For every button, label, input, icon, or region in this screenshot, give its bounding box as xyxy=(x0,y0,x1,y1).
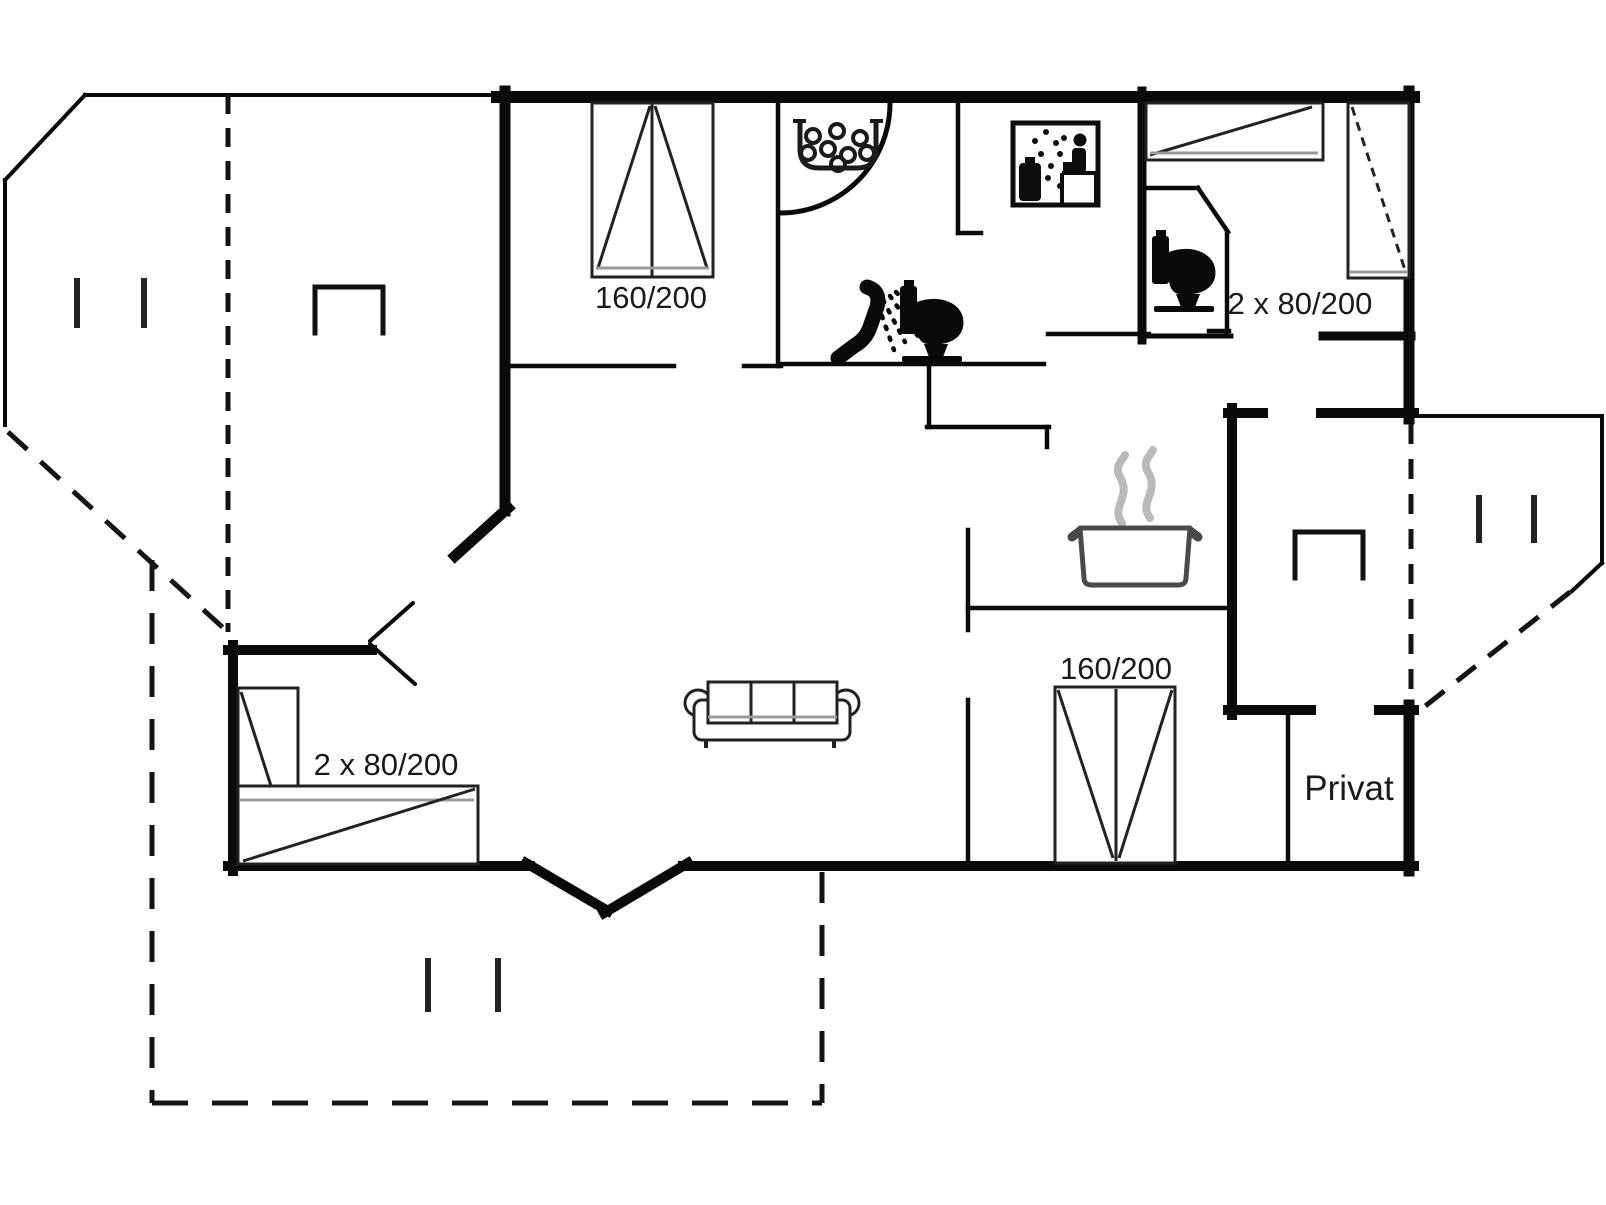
bed-size-label-bottom-left: 2 x 80/200 xyxy=(314,747,459,782)
private-room-label: Privat xyxy=(1304,769,1394,808)
double-bed-icon xyxy=(592,103,713,277)
bed-size-label-top-right: 2 x 80/200 xyxy=(1228,286,1373,321)
single-bed-icon xyxy=(1348,103,1409,278)
single-bed-icon xyxy=(1146,103,1323,160)
sofa-icon xyxy=(685,682,859,748)
sauna-icon xyxy=(1013,123,1098,205)
bed-size-label-top: 160/200 xyxy=(595,280,707,315)
floor-plan-drawing: 160/200 2 x 80/200 2 x 80/200 160/200 Pr… xyxy=(0,0,1606,1205)
double-bed-icon xyxy=(1055,687,1175,863)
bed-size-label-bottom-right: 160/200 xyxy=(1060,651,1172,686)
floor-plan: 160/200 2 x 80/200 2 x 80/200 160/200 Pr… xyxy=(0,0,1606,1205)
